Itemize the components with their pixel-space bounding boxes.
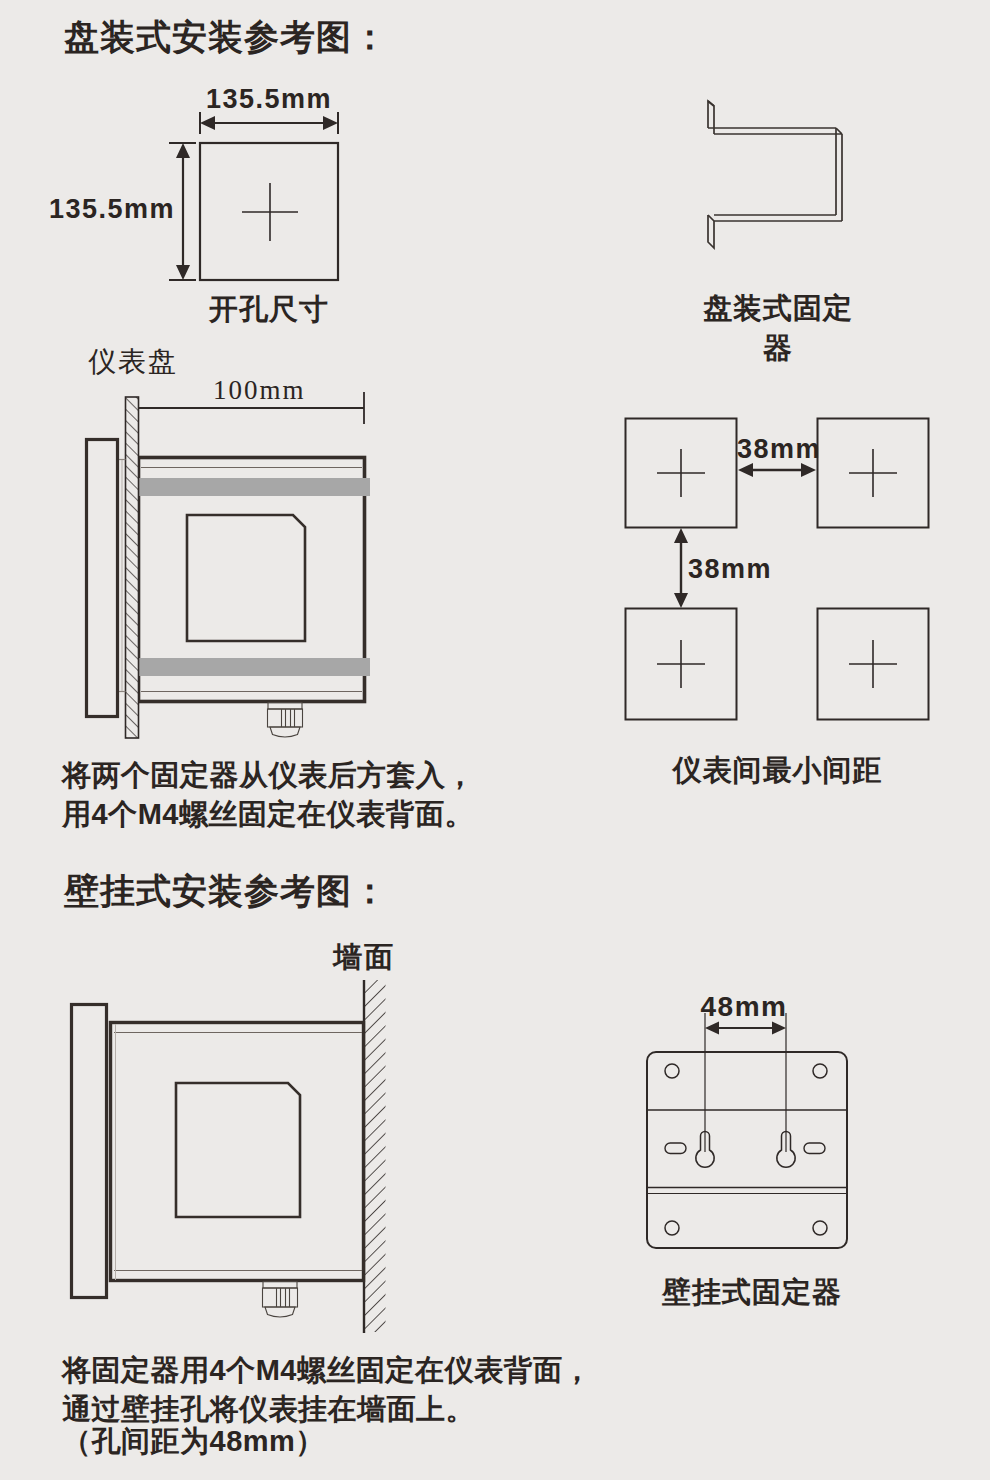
instrument-body bbox=[111, 1023, 364, 1281]
plate-dimension-label: 48mm bbox=[698, 991, 790, 1023]
wall-note-line3: （孔间距为48mm） bbox=[62, 1422, 325, 1462]
fixer-plate bbox=[647, 1052, 847, 1248]
panel-side-view-diagram bbox=[60, 385, 380, 745]
panel-note-line2: 用4个M4螺丝固定在仪表背面。 bbox=[62, 795, 474, 835]
panel-bracket-caption: 盘装式固定器 bbox=[690, 289, 866, 369]
wall-note-line1: 将固定器用4个M4螺丝固定在仪表背面， bbox=[62, 1351, 592, 1391]
top-fixer-bar bbox=[139, 478, 370, 496]
panel-board-label: 仪表盘 bbox=[88, 343, 178, 381]
wall-plate-diagram bbox=[630, 985, 870, 1260]
wall-hatching bbox=[365, 980, 386, 1332]
wall-plate-caption: 壁挂式固定器 bbox=[630, 1273, 874, 1313]
cutout-diagram bbox=[160, 105, 360, 290]
front-bezel bbox=[87, 440, 118, 717]
spacing-caption: 仪表间最小间距 bbox=[625, 751, 930, 791]
panel-bracket-diagram bbox=[700, 95, 860, 260]
bottom-fixer-bar bbox=[139, 658, 370, 676]
arrowhead-left bbox=[200, 116, 215, 130]
installation-reference-page: { "panel": { "title": "盘装式安装参考图：", "cuto… bbox=[0, 0, 990, 1480]
cutout-caption: 开孔尺寸 bbox=[194, 290, 344, 330]
cable-gland bbox=[263, 1282, 298, 1318]
arrowhead-up bbox=[176, 143, 190, 158]
arrowhead-right bbox=[323, 116, 338, 130]
arrowhead-down bbox=[176, 265, 190, 280]
cutout-width-label: 135.5mm bbox=[199, 84, 339, 115]
wall-section-title: 壁挂式安装参考图： bbox=[64, 868, 388, 915]
wall-side-view-diagram bbox=[60, 975, 400, 1340]
h-spacing-label: 38mm bbox=[737, 434, 821, 465]
cutout-height-label: 135.5mm bbox=[28, 194, 175, 225]
panel-note-line1: 将两个固定器从仪表后方套入， bbox=[62, 756, 475, 796]
panel-section-title: 盘装式安装参考图： bbox=[64, 14, 388, 61]
front-bezel bbox=[72, 1005, 107, 1298]
wall-surface-label: 墙面 bbox=[333, 938, 395, 978]
cable-gland bbox=[268, 703, 303, 738]
v-spacing-label: 38mm bbox=[688, 554, 772, 585]
